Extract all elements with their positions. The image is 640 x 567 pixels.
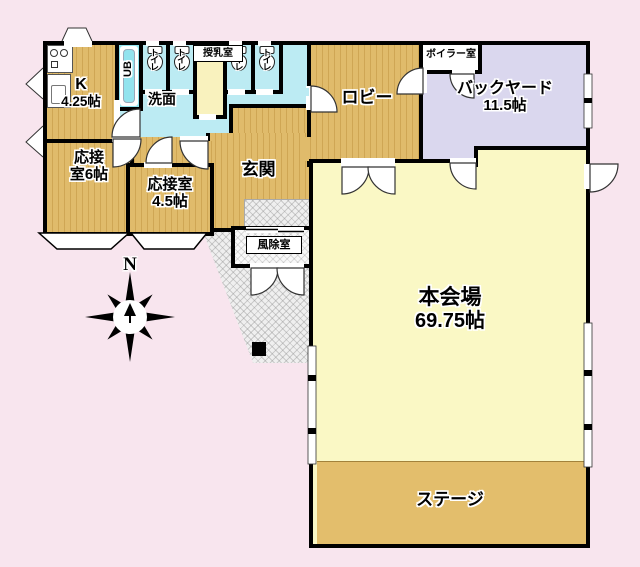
label-north: N: [117, 254, 143, 275]
toilet-label: トイレ: [148, 48, 161, 69]
label-main-hall: 本会場 69.75帖: [330, 286, 570, 332]
label-backyard: バックヤード 11.5帖: [427, 80, 583, 115]
label-kitchen: K 4.25帖: [43, 76, 119, 109]
label-lobby: ロビー: [311, 88, 423, 107]
label-reception-6: 応接 室6帖: [45, 150, 133, 184]
label-washroom: 洗面: [126, 92, 198, 108]
label-stage: ステージ: [330, 490, 570, 509]
passage-patch: [305, 137, 319, 161]
label-windbreak: 風除室: [246, 236, 302, 254]
label-boiler: ボイラー室: [420, 49, 482, 60]
toilet-label: トイレ: [261, 48, 274, 69]
room-main-hall-step: [474, 146, 590, 167]
label-unit-bath: UB: [122, 49, 136, 89]
floor-plan: トイレ トイレ トイレ トイレ: [0, 0, 640, 567]
label-reception-45: 応接室 4.5帖: [128, 177, 212, 211]
casement-window-icon: [26, 68, 43, 99]
label-entrance: 玄関: [206, 160, 311, 179]
casement-window-icon: [26, 126, 43, 157]
compass-icon: [85, 272, 175, 362]
stove-icon: [47, 45, 73, 73]
toilet-label: トイレ: [175, 48, 188, 69]
label-nursing: 授乳室: [193, 45, 243, 62]
